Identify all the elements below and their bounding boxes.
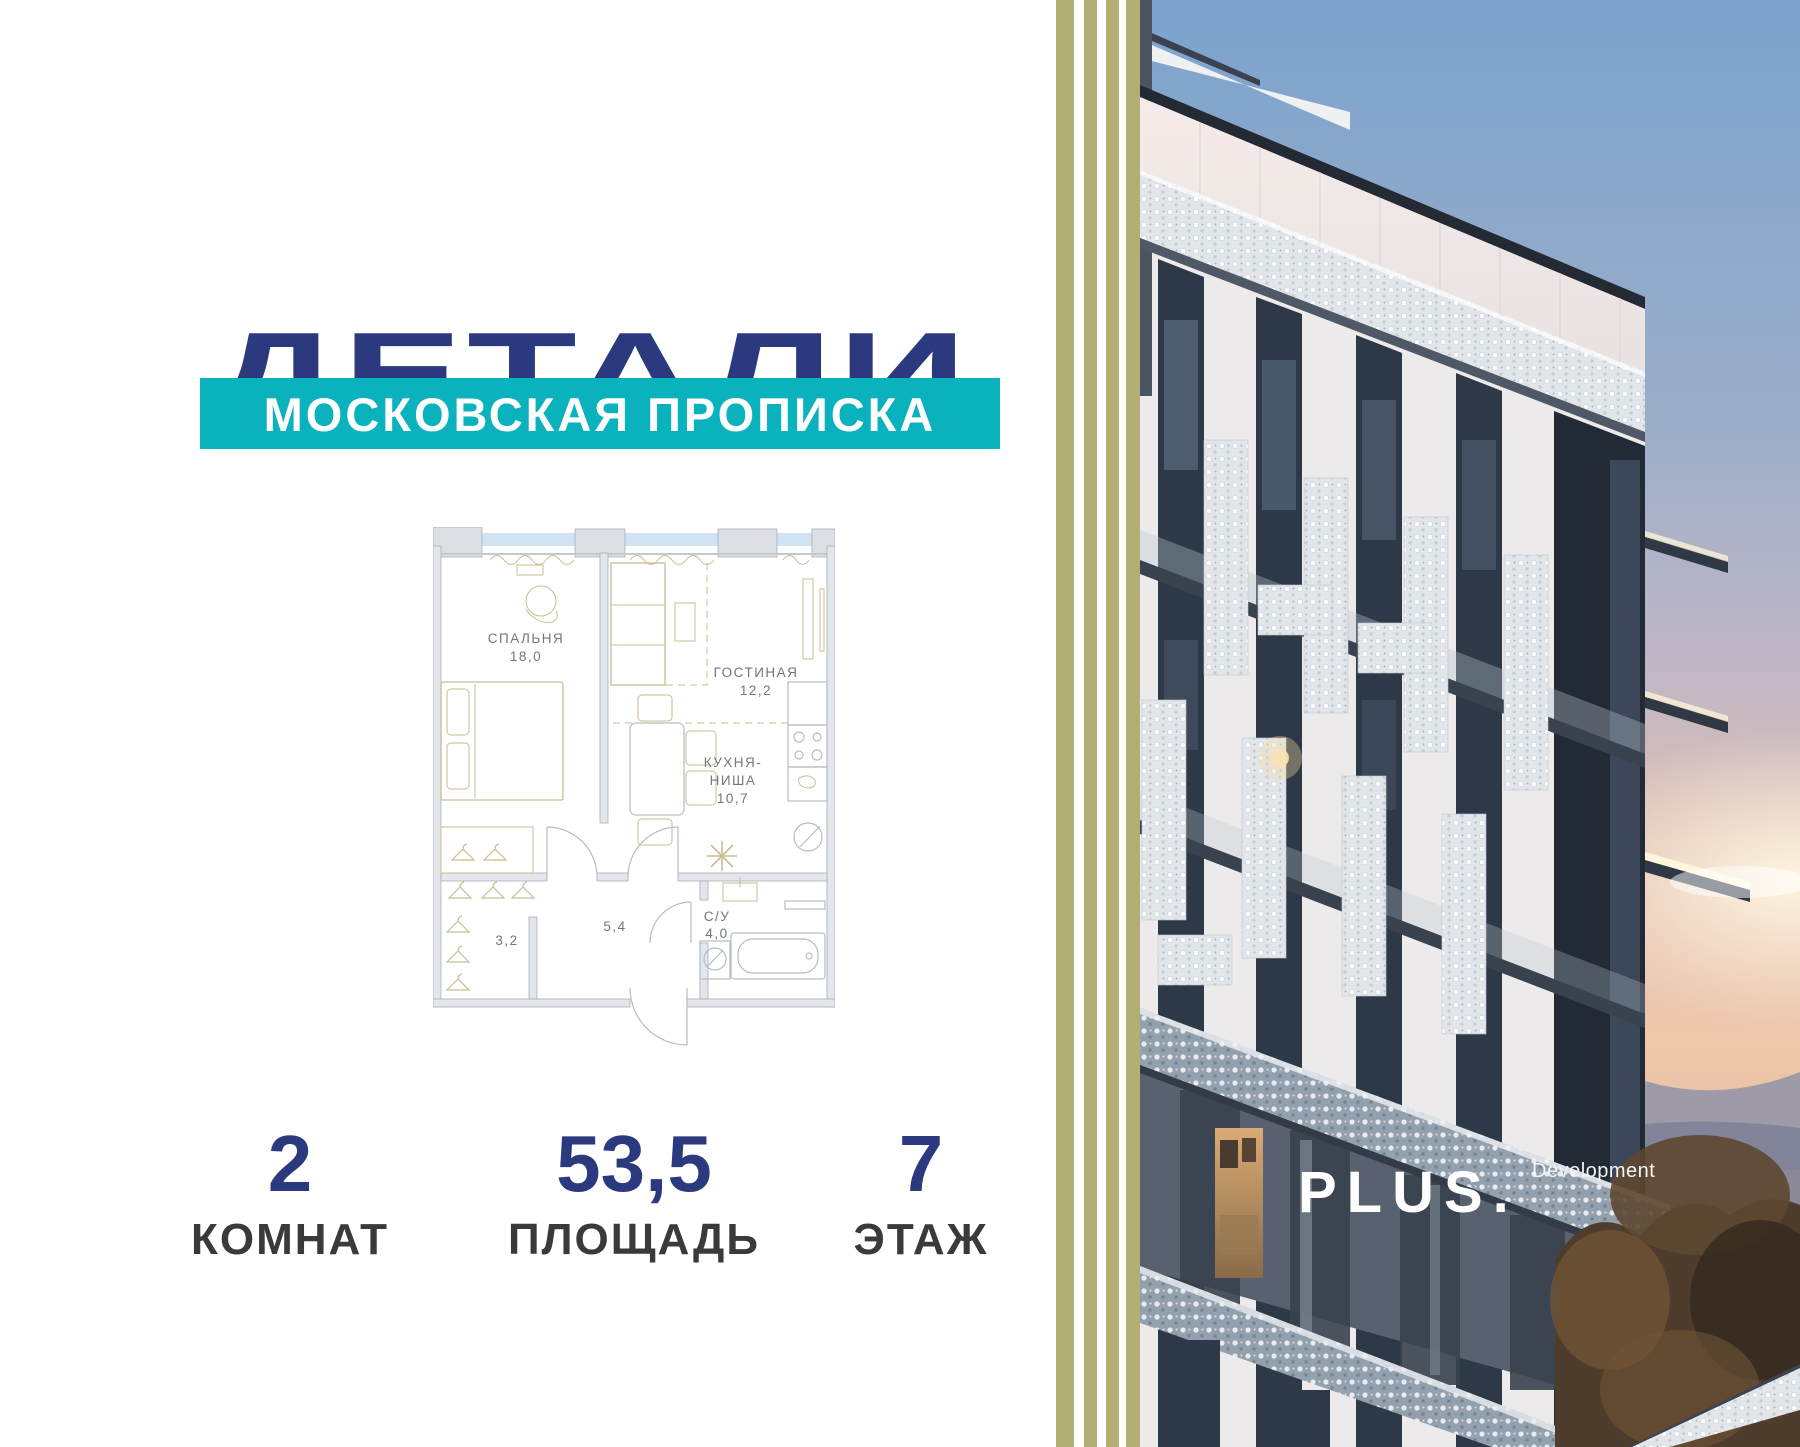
wall-pier <box>718 529 777 557</box>
brand-subtitle: МОСКОВСКАЯ ПРОПИСКА <box>264 388 937 441</box>
chair <box>526 586 556 616</box>
area-value: 53,5 <box>484 1124 784 1204</box>
bathroom-area: 4,0 <box>705 926 728 941</box>
door-arcs <box>547 827 691 1045</box>
brand-subtitle-banner: МОСКОВСКАЯ ПРОПИСКА <box>200 378 1000 449</box>
apartment-card: ДЕТАЛИ МОСКОВСКАЯ ПРОПИСКА <box>0 0 1800 1447</box>
wardrobe-area: 3,2 <box>495 933 518 948</box>
window-sill <box>433 553 835 555</box>
bedroom-area: 18,0 <box>510 649 542 664</box>
pillow <box>447 689 469 735</box>
closet <box>441 827 533 873</box>
building-render: PLUS. Development <box>1140 0 1800 1447</box>
coffee-table <box>675 603 695 641</box>
radiator-wave <box>490 556 574 565</box>
entry-door-arc <box>630 988 687 1045</box>
living-label: ГОСТИНАЯ <box>714 665 799 680</box>
kitchen-label-1: КУХНЯ- <box>704 755 763 770</box>
bedroom-furniture <box>441 565 563 873</box>
wall <box>529 917 537 999</box>
wall <box>433 546 441 1007</box>
wall-divider <box>600 553 608 823</box>
info-panel: ДЕТАЛИ МОСКОВСКАЯ ПРОПИСКА <box>0 0 1056 1447</box>
developer-suffix: Development <box>1532 1160 1655 1182</box>
building-photo: PLUS. Development <box>1140 0 1800 1447</box>
tv <box>820 589 824 651</box>
stat-rooms: 2 КОМНАТ <box>140 1124 440 1262</box>
plus-logo-text: PLUS. <box>1298 1160 1519 1225</box>
desk <box>517 565 543 575</box>
bedroom-label: СПАЛЬНЯ <box>488 631 564 646</box>
stripe-divider <box>1056 0 1140 1447</box>
kitchen-sink <box>788 767 827 801</box>
wall <box>827 546 835 1007</box>
zone-dash <box>613 563 707 685</box>
stove <box>788 725 827 767</box>
bathtub <box>731 933 825 979</box>
living-kitchen-furniture <box>611 563 827 871</box>
radiator-wave <box>783 556 809 565</box>
tv-stand <box>803 579 813 659</box>
wardrobe-hangers <box>447 844 534 990</box>
dining-table <box>630 723 684 815</box>
floor-plan: СПАЛЬНЯ 18,0 ГОСТИНАЯ 12,2 КУХНЯ- НИША 1… <box>433 527 835 1047</box>
washer-kitchen-icon <box>794 823 822 851</box>
rooms-value: 2 <box>140 1124 440 1204</box>
living-area: 12,2 <box>740 683 772 698</box>
kitchen-counter <box>788 682 827 725</box>
hallway-area: 5,4 <box>603 919 626 934</box>
sink-bowl <box>799 776 816 788</box>
kitchen-area: 10,7 <box>717 791 749 806</box>
wall <box>700 881 708 900</box>
sofa <box>611 563 665 685</box>
wall <box>597 873 628 881</box>
floor-value: 7 <box>771 1124 1071 1204</box>
snowflake-icon <box>707 841 737 871</box>
floor-label: ЭТАЖ <box>771 1218 1071 1262</box>
bathroom-label: С/У <box>704 909 731 924</box>
towel-rail <box>785 901 825 909</box>
area-label: ПЛОЩАДЬ <box>484 1218 784 1262</box>
rooms-label: КОМНАТ <box>140 1218 440 1262</box>
stats-row: 2 КОМНАТ 53,5 ПЛОЩАДЬ 7 ЭТАЖ <box>0 1124 1056 1274</box>
stat-area: 53,5 ПЛОЩАДЬ <box>484 1124 784 1262</box>
kitchen-label-2: НИША <box>710 773 757 788</box>
chair <box>638 695 672 721</box>
bed <box>441 682 563 800</box>
wall <box>441 873 547 881</box>
stat-floor: 7 ЭТАЖ <box>771 1124 1071 1262</box>
wall <box>687 999 835 1007</box>
wall <box>678 873 827 881</box>
pillow <box>447 743 469 789</box>
wall <box>433 999 630 1007</box>
